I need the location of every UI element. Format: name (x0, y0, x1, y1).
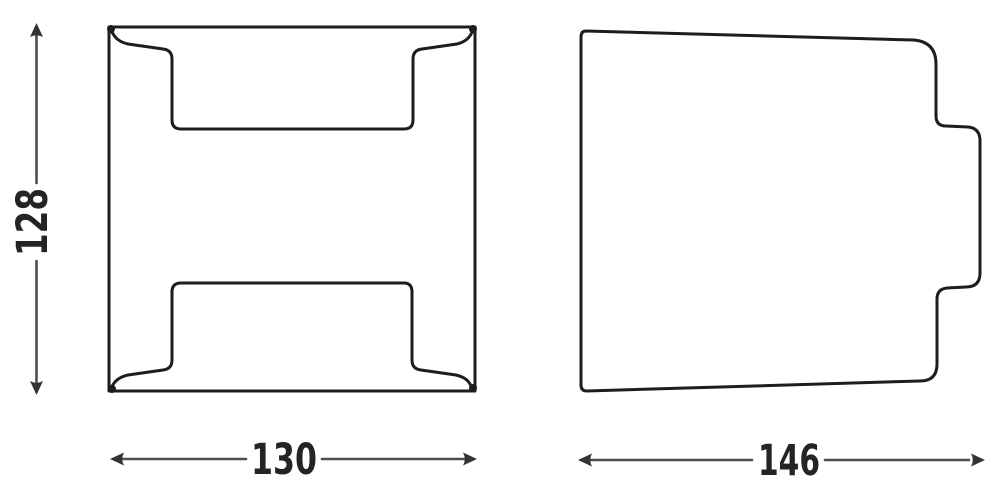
front-view-corner-dot-top-left (107, 25, 115, 33)
drawing-svg: 128 130 146 (0, 0, 1000, 500)
side-depth-dimension-label: 146 (758, 436, 820, 486)
front-view-corner-dot-top-right (469, 25, 477, 33)
arrow-left-icon (578, 454, 592, 467)
side-depth-dimension: 146 (578, 436, 985, 486)
front-view-top-recess (111, 30, 473, 129)
height-dimension: 128 (8, 23, 58, 395)
front-view (107, 25, 477, 393)
front-view-corner-dot-bottom-right (469, 384, 477, 392)
arrow-right-icon (463, 453, 477, 466)
front-view-outer-outline (109, 27, 475, 391)
side-view (581, 31, 980, 391)
front-width-dimension-label: 130 (251, 435, 317, 485)
arrow-right-icon (971, 454, 985, 467)
arrow-up-icon (30, 23, 43, 37)
dimension-drawing: 128 130 146 (0, 0, 1000, 500)
front-width-dimension: 130 (110, 435, 477, 485)
side-view-outline (581, 31, 980, 391)
front-view-bottom-recess (111, 283, 472, 388)
arrow-left-icon (110, 453, 124, 466)
front-view-corner-dot-bottom-left (108, 385, 116, 393)
arrow-down-icon (30, 381, 43, 395)
height-dimension-label: 128 (8, 188, 58, 256)
